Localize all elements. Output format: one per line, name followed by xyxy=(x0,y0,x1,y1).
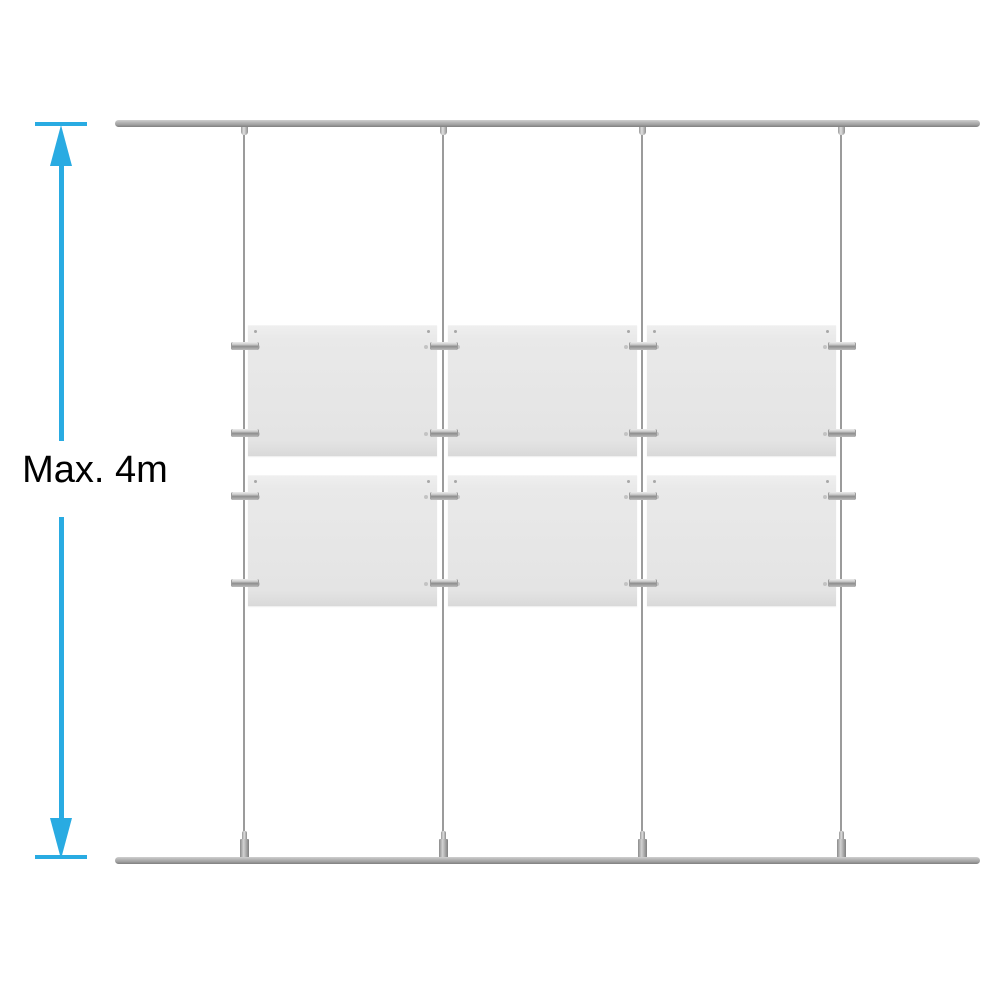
pocket-corner-stud xyxy=(653,330,656,333)
pocket-corner-stud xyxy=(254,330,257,333)
cable-panel-clamp xyxy=(629,492,657,500)
cable-tensioner-body xyxy=(638,839,647,858)
cable-tensioner-body xyxy=(837,839,846,858)
cable-panel-clamp xyxy=(231,492,259,500)
dimension-line-upper xyxy=(59,164,64,441)
acrylic-poster-pocket xyxy=(248,475,437,606)
product-diagram: Max. 4m xyxy=(0,0,1000,1000)
pocket-corner-stud xyxy=(826,330,829,333)
cable-tensioner-body xyxy=(439,839,448,858)
cable-panel-clamp xyxy=(430,342,458,350)
pocket-corner-stud xyxy=(627,330,630,333)
dimension-line-lower xyxy=(59,517,64,819)
bottom-rail xyxy=(115,857,980,864)
clamp-screw-head xyxy=(823,495,827,499)
clamp-screw-head xyxy=(624,432,628,436)
acrylic-poster-pocket xyxy=(647,325,836,456)
cable-panel-clamp xyxy=(629,579,657,587)
acrylic-poster-pocket xyxy=(248,325,437,456)
cable-panel-clamp xyxy=(231,429,259,437)
acrylic-poster-pocket xyxy=(647,475,836,606)
pocket-corner-stud xyxy=(427,480,430,483)
dimension-label: Max. 4m xyxy=(10,448,180,492)
clamp-screw-head xyxy=(823,432,827,436)
acrylic-poster-pocket xyxy=(448,325,637,456)
cable-panel-clamp xyxy=(828,492,856,500)
cable-panel-clamp xyxy=(629,429,657,437)
cable-panel-clamp xyxy=(231,579,259,587)
pocket-corner-stud xyxy=(454,480,457,483)
clamp-screw-head xyxy=(624,495,628,499)
clamp-screw-head xyxy=(424,345,428,349)
cable-panel-clamp xyxy=(430,492,458,500)
clamp-screw-head xyxy=(624,345,628,349)
cable-panel-clamp xyxy=(430,579,458,587)
clamp-screw-head xyxy=(424,495,428,499)
pocket-corner-stud xyxy=(627,480,630,483)
pocket-corner-stud xyxy=(427,330,430,333)
cable-panel-clamp xyxy=(629,342,657,350)
cable-panel-clamp xyxy=(828,429,856,437)
clamp-screw-head xyxy=(823,345,827,349)
clamp-screw-head xyxy=(624,582,628,586)
pocket-corner-stud xyxy=(826,480,829,483)
pocket-corner-stud xyxy=(254,480,257,483)
dimension-arrowhead-up-icon xyxy=(50,125,72,166)
pocket-corner-stud xyxy=(653,480,656,483)
clamp-screw-head xyxy=(424,432,428,436)
top-rail xyxy=(115,120,980,127)
dimension-arrowhead-down-icon xyxy=(50,818,72,859)
clamp-screw-head xyxy=(424,582,428,586)
cable-panel-clamp xyxy=(828,579,856,587)
cable-tensioner-body xyxy=(240,839,249,858)
cable-panel-clamp xyxy=(828,342,856,350)
dimension-tick-bottom xyxy=(35,855,87,859)
acrylic-poster-pocket xyxy=(448,475,637,606)
pocket-corner-stud xyxy=(454,330,457,333)
cable-panel-clamp xyxy=(231,342,259,350)
clamp-screw-head xyxy=(823,582,827,586)
cable-panel-clamp xyxy=(430,429,458,437)
